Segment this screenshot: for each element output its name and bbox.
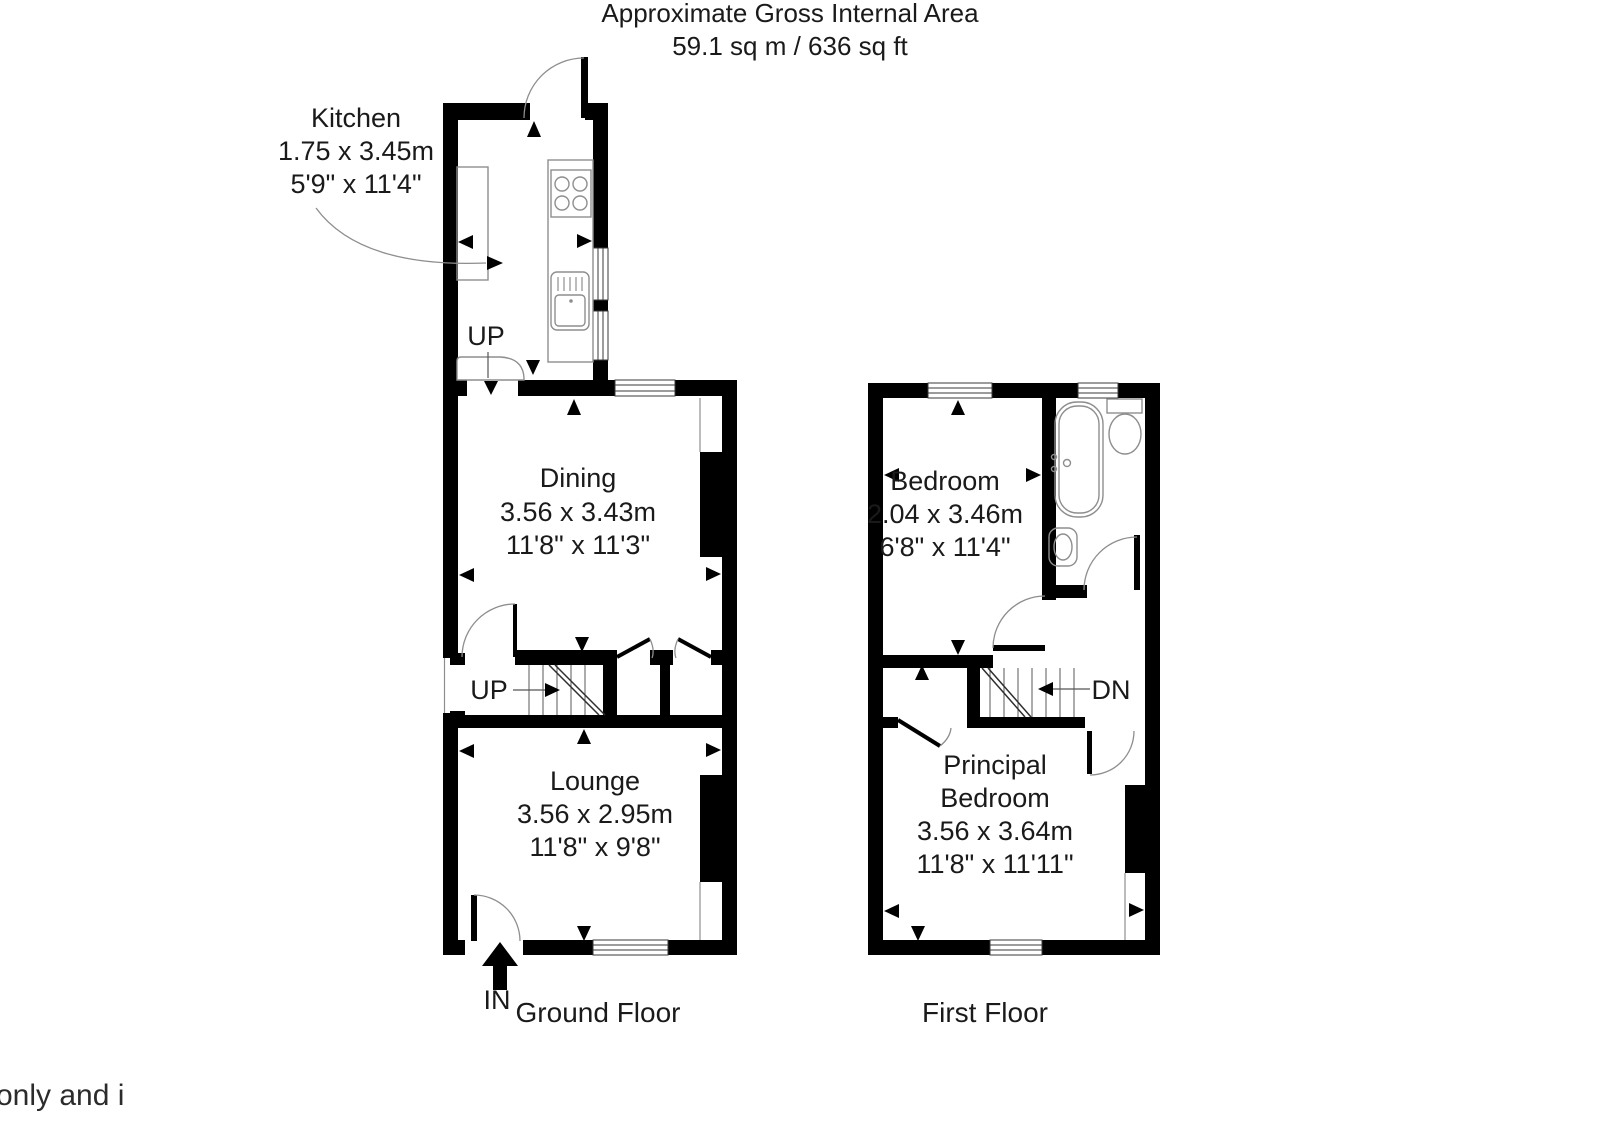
disclaimer-fragment: only and i <box>0 1079 124 1112</box>
first-floor-plan: Bedroom 2.04 x 3.46m 6'8" x 11'4" DN Pri… <box>867 383 1160 1028</box>
first-floor-caption: First Floor <box>922 997 1048 1028</box>
kitchen-stair-bulkhead <box>457 352 524 380</box>
principal-bedroom-dim-metric: 3.56 x 3.64m <box>917 816 1073 846</box>
bathtub-icon <box>1052 402 1104 517</box>
bathroom-fixtures <box>1049 399 1142 566</box>
kitchen-dim-imperial: 5'9" x 11'4" <box>290 169 421 199</box>
kitchen-dim-metric: 1.75 x 3.45m <box>278 136 434 166</box>
lounge-dim-imperial: 11'8" x 9'8" <box>529 832 660 862</box>
dining-chimney-breast <box>700 452 722 557</box>
bedroom-dim-metric: 2.04 x 3.46m <box>867 499 1023 529</box>
bedroom-dim-imperial: 6'8" x 11'4" <box>879 532 1010 562</box>
principal-bedroom-second-door <box>898 720 951 746</box>
dining-label: Dining <box>540 463 617 493</box>
bedroom-label: Bedroom <box>890 466 1000 496</box>
sink-icon <box>551 272 589 330</box>
kitchen-counter-right <box>548 160 593 362</box>
stove-icon <box>551 170 591 217</box>
principal-bedroom-label-1: Principal <box>943 750 1047 780</box>
dining-dim-metric: 3.56 x 3.43m <box>500 497 656 527</box>
principal-chimney-breast <box>1125 785 1145 873</box>
principal-bedroom-dim-imperial: 11'8" x 11'11" <box>916 849 1073 879</box>
kitchen-stairs-up-label: UP <box>467 321 505 351</box>
area-value: 59.1 sq m / 636 sq ft <box>672 31 908 61</box>
bedroom-door <box>993 596 1045 651</box>
principal-bedroom-label-2: Bedroom <box>940 783 1050 813</box>
entrance-in-label: IN <box>484 985 511 1015</box>
lounge-label: Lounge <box>550 766 640 796</box>
front-door <box>471 895 520 941</box>
first-floor-staircase <box>982 668 1074 717</box>
header: Approximate Gross Internal Area 59.1 sq … <box>601 0 979 61</box>
lounge-chimney-breast <box>700 775 722 882</box>
entrance-arrow-icon <box>482 942 518 990</box>
main-stairs-up-label: UP <box>470 675 508 705</box>
dining-door <box>462 604 515 657</box>
bathroom-door <box>1084 535 1140 590</box>
kitchen-label: Kitchen <box>311 103 401 133</box>
floorplan-drawing: Approximate Gross Internal Area 59.1 sq … <box>0 0 1600 1127</box>
ground-floor-plan: Kitchen 1.75 x 3.45m 5'9" x 11'4" UP Din… <box>278 57 737 1028</box>
kitchen-back-door <box>524 57 588 118</box>
principal-bedroom-door <box>1087 731 1134 775</box>
area-title: Approximate Gross Internal Area <box>601 0 979 28</box>
floorplan-page: Approximate Gross Internal Area 59.1 sq … <box>0 0 1600 1127</box>
stairs-dn-label: DN <box>1092 675 1131 705</box>
lounge-dim-metric: 3.56 x 2.95m <box>517 799 673 829</box>
ground-floor-caption: Ground Floor <box>516 997 681 1028</box>
toilet-icon <box>1107 399 1142 454</box>
dining-dim-imperial: 11'8" x 11'3" <box>506 530 650 560</box>
kitchen-leader-arrow <box>487 256 503 270</box>
kitchen-label-leader <box>316 208 486 263</box>
